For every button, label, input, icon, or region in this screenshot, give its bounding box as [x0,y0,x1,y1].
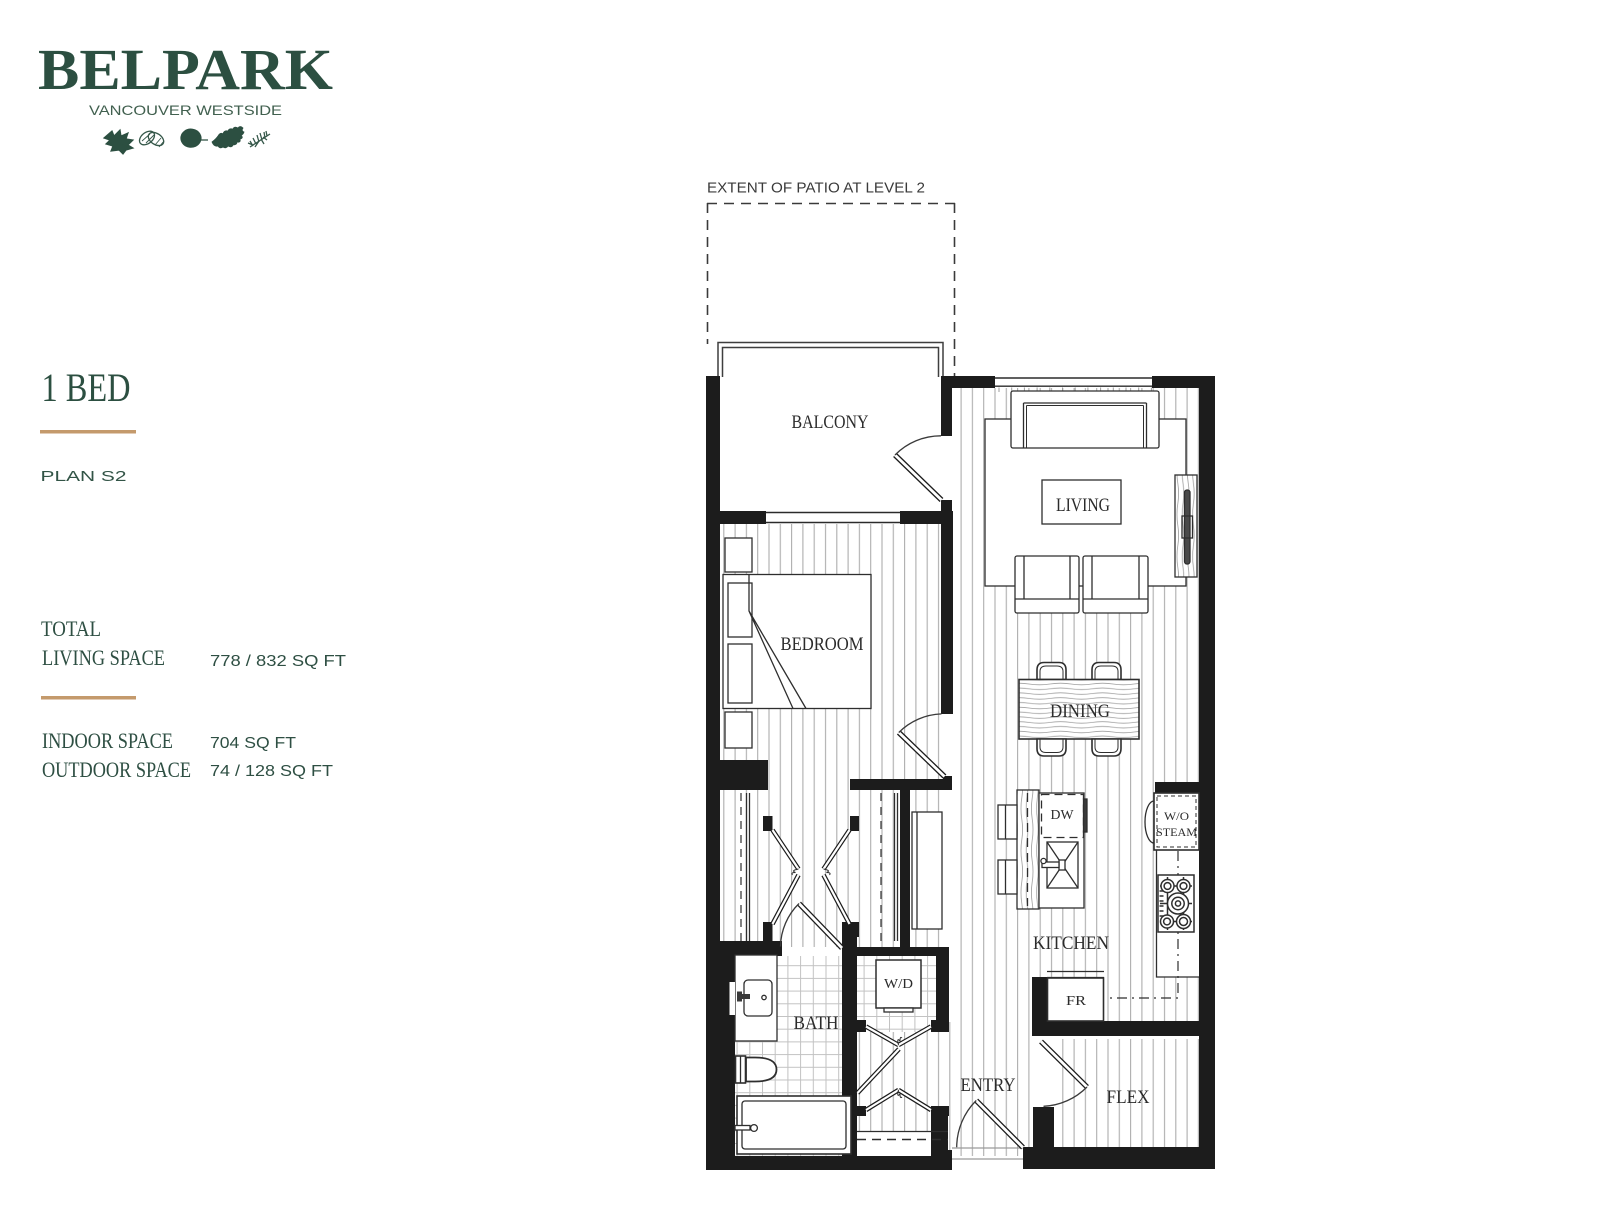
svg-text:BEDROOM: BEDROOM [781,634,864,655]
svg-text:VANCOUVER WESTSIDE: VANCOUVER WESTSIDE [89,102,282,118]
svg-text:778 / 832 SQ FT: 778 / 832 SQ FT [210,653,346,670]
svg-text:KITCHEN: KITCHEN [1033,933,1109,954]
svg-text:LIVING SPACE: LIVING SPACE [42,645,165,670]
svg-text:74 / 128 SQ FT: 74 / 128 SQ FT [210,763,333,780]
svg-text:W/O: W/O [1164,809,1189,823]
svg-text:PLAN S2: PLAN S2 [41,469,127,485]
svg-text:INDOOR SPACE: INDOOR SPACE [42,728,173,753]
svg-text:STEAM: STEAM [1156,825,1197,839]
svg-text:W/D: W/D [884,977,913,992]
svg-text:EXTENT OF PATIO AT LEVEL 2: EXTENT OF PATIO AT LEVEL 2 [707,181,925,197]
svg-text:704 SQ FT: 704 SQ FT [210,735,296,752]
svg-text:DINING: DINING [1050,701,1110,722]
svg-text:FR: FR [1066,994,1087,1009]
svg-text:BATH: BATH [794,1013,839,1034]
svg-text:OUTDOOR SPACE: OUTDOOR SPACE [42,757,191,782]
svg-text:DW: DW [1051,808,1075,823]
svg-text:TOTAL: TOTAL [41,616,101,641]
svg-text:1 BED: 1 BED [42,365,131,410]
svg-text:FLEX: FLEX [1107,1087,1150,1108]
svg-text:BELPARK: BELPARK [38,37,333,102]
svg-text:ENTRY: ENTRY [961,1075,1016,1096]
svg-text:LIVING: LIVING [1056,495,1110,516]
svg-text:BALCONY: BALCONY [792,412,869,433]
